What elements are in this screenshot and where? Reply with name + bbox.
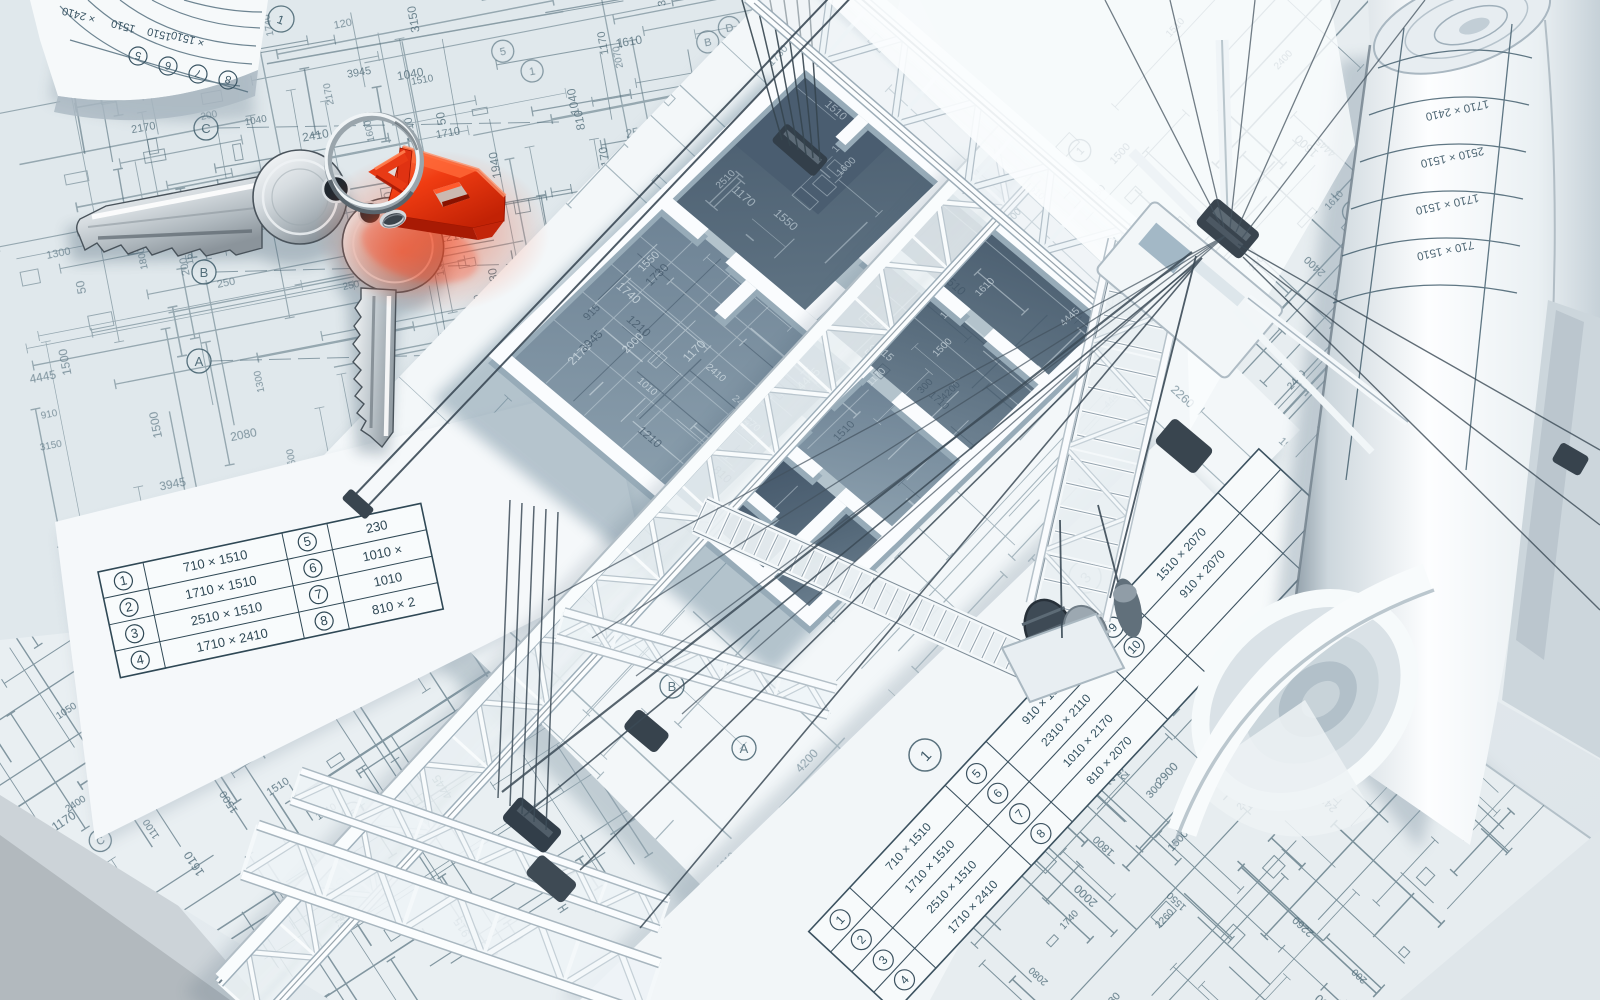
svg-text:50: 50 [433, 111, 449, 127]
svg-text:A: A [195, 354, 204, 369]
svg-text:A: A [740, 741, 749, 756]
svg-text:C: C [201, 121, 210, 136]
svg-text:B: B [200, 265, 209, 280]
